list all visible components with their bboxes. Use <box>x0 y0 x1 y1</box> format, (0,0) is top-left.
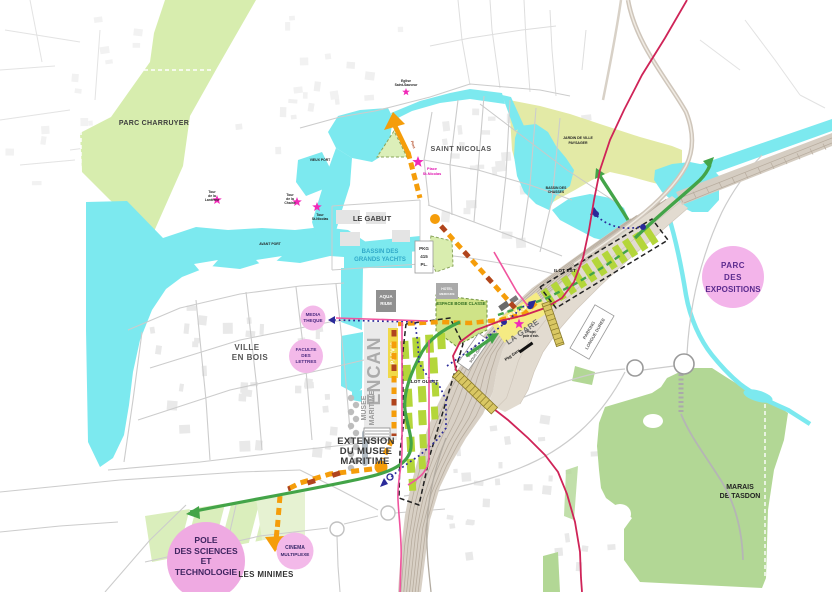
svg-text:pole d'ech.: pole d'ech. <box>523 334 540 338</box>
svg-text:ET: ET <box>201 556 213 566</box>
svg-text:GRANDS YACHTS: GRANDS YACHTS <box>354 257 406 263</box>
svg-text:PL.: PL. <box>420 262 427 267</box>
svg-text:MERCURE: MERCURE <box>439 292 454 296</box>
svg-text:St-Nicolas: St-Nicolas <box>423 172 442 176</box>
svg-text:DES: DES <box>301 353 310 358</box>
svg-text:415: 415 <box>420 254 428 259</box>
svg-text:MULTIPLEXE: MULTIPLEXE <box>281 552 310 557</box>
svg-text:ESPACE BOISE CLASSE: ESPACE BOISE CLASSE <box>436 301 485 306</box>
svg-text:Lanterne: Lanterne <box>205 198 219 202</box>
svg-text:ILOT OUEST: ILOT OUEST <box>410 379 439 384</box>
svg-text:RIUM: RIUM <box>380 301 392 306</box>
svg-text:MEDIA: MEDIA <box>306 312 321 317</box>
svg-text:MARAIS: MARAIS <box>726 484 754 491</box>
svg-text:LETTRES: LETTRES <box>296 359 317 364</box>
svg-text:CHASSES: CHASSES <box>548 190 565 194</box>
svg-text:Place: Place <box>427 167 437 171</box>
svg-text:LES MINIMES: LES MINIMES <box>238 570 294 579</box>
svg-text:VIEUX PORT: VIEUX PORT <box>310 158 331 162</box>
svg-text:St-Nicolas: St-Nicolas <box>312 217 329 221</box>
svg-text:HOTEL: HOTEL <box>441 287 453 291</box>
svg-text:EN BOIS: EN BOIS <box>232 353 269 362</box>
svg-text:DES SCIENCES: DES SCIENCES <box>174 546 238 556</box>
svg-text:FACULTE: FACULTE <box>296 347 317 352</box>
svg-text:BASSIN DES: BASSIN DES <box>362 249 399 255</box>
svg-text:VILLE: VILLE <box>234 343 259 352</box>
svg-text:PKG: PKG <box>419 246 429 251</box>
svg-text:CINEMA: CINEMA <box>285 545 305 551</box>
svg-text:ILOT EST: ILOT EST <box>554 268 576 273</box>
svg-text:THEQUE: THEQUE <box>303 318 322 323</box>
svg-text:MARITIME: MARITIME <box>340 456 389 467</box>
svg-text:LE GABUT: LE GABUT <box>353 214 392 223</box>
svg-text:TECHNOLOGIE: TECHNOLOGIE <box>175 567 238 577</box>
svg-text:PAYSAGER: PAYSAGER <box>568 141 588 145</box>
svg-text:Saint-Sauveur: Saint-Sauveur <box>395 83 418 87</box>
svg-text:PARC: PARC <box>721 261 745 270</box>
svg-text:MUSEE: MUSEE <box>361 395 368 420</box>
svg-text:DES: DES <box>724 273 742 282</box>
svg-text:AVANT PORT: AVANT PORT <box>259 242 281 246</box>
svg-text:Chaine: Chaine <box>284 201 295 205</box>
svg-text:JARDIN DE VILLE: JARDIN DE VILLE <box>563 136 593 140</box>
svg-text:EXPOSITIONS: EXPOSITIONS <box>705 285 761 294</box>
svg-text:DE TASDON: DE TASDON <box>720 493 761 500</box>
svg-text:SAINT NICOLAS: SAINT NICOLAS <box>430 144 491 153</box>
svg-text:PARC CHARRUYER: PARC CHARRUYER <box>119 120 189 127</box>
svg-text:AQUA: AQUA <box>379 294 393 299</box>
svg-text:MARITIME: MARITIME <box>369 390 376 425</box>
svg-text:POLE: POLE <box>194 535 217 545</box>
